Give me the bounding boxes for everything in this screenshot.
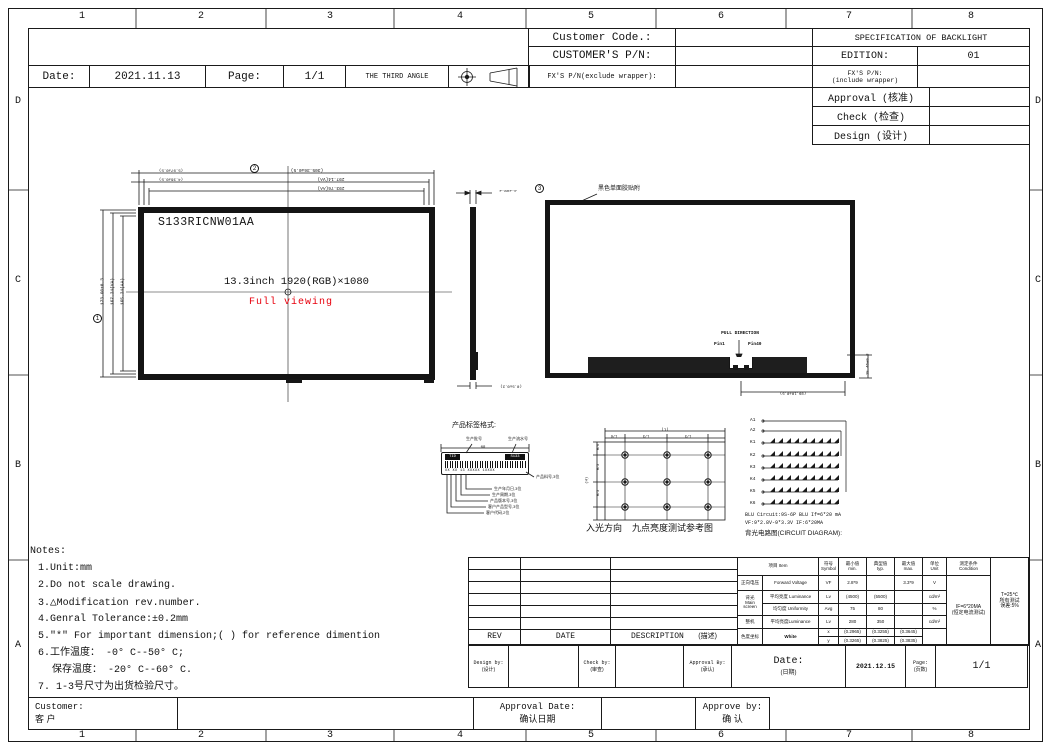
fv-item-en: Forward Voltage [763, 576, 819, 591]
uniformity-symbol: Avg [819, 604, 839, 616]
note-2: 2.Do not scale drawing. [38, 580, 176, 592]
terminal-a1: A1 [750, 418, 755, 423]
description-cn: (描述) [698, 633, 717, 640]
customer-footer-cn: 客 户 [35, 712, 56, 725]
backlight-item-cn: 背光Main screen [738, 591, 763, 616]
label-callout-week: 生产周期,3位 [492, 493, 515, 498]
signoff-page-cn: (页数) [914, 666, 927, 673]
fv-unit: V [923, 576, 947, 591]
panel-model: S133RICNW01AA [158, 216, 254, 229]
description-en: DESCRIPTION [631, 632, 684, 641]
chroma-x-symbol: x [819, 629, 839, 637]
rev-row-cell [469, 618, 521, 630]
fx-pn-include-value [917, 65, 1030, 88]
header-unit-en: Unit [923, 567, 946, 572]
full-viewing-label: Full viewing [249, 297, 333, 309]
pin40-label: Pin40 [748, 342, 762, 347]
circuit-diagram-title: 背光电路图(CIRCUIT DIAGRAM): [745, 530, 842, 537]
page-value-cell: 1/1 [283, 65, 346, 88]
ruler-col-top: 6 [711, 11, 731, 23]
ruler-col-top: 2 [191, 11, 211, 23]
luminance-min: (4500) [839, 591, 867, 604]
fx-pn-exclude-value [675, 65, 813, 88]
page-label-cell: Page: [205, 65, 284, 88]
customer-code-value [675, 28, 813, 47]
label-callout-serial: 生产流水号 [508, 437, 528, 442]
customer-footer-cell: Customer: 客 户 [28, 697, 178, 730]
header-condition: 测定条件Condition [947, 558, 991, 576]
third-angle-cell: THE THIRD ANGLE [345, 65, 449, 88]
terminal-k3: K3 [750, 465, 755, 470]
ruler-col-bottom: 4 [450, 730, 470, 742]
chroma-x-min: (0.2965) [839, 629, 867, 637]
front-view-panel [138, 207, 435, 380]
dim-width-aa: 293.76(AA) [296, 185, 366, 190]
fv-symbol: VF [819, 576, 839, 591]
barcode [445, 461, 527, 468]
approval-sign-area [929, 87, 1030, 107]
fx-pn-exclude-cell: FX'S P/N(exclude wrapper): [528, 65, 676, 88]
designby-sign-area [508, 644, 579, 688]
label-callout-date: 生产年月日,3位 [494, 487, 521, 492]
design-sign-area [929, 125, 1030, 145]
ruler-col-bottom: 7 [839, 730, 859, 742]
label-callout-customer-model: 客户产品型号,3位 [488, 505, 519, 510]
terminal-a2: A2 [750, 428, 755, 433]
tolerance-line3: 误差:5% [991, 604, 1028, 610]
ruler-row-right: B [1031, 460, 1045, 472]
machine-symbol: Lv [819, 616, 839, 629]
fx-pn-include-label: FX'S P/N: [847, 70, 882, 77]
rev-row-cell [469, 594, 521, 606]
dim-height-outline: 173.60±0.3 [100, 262, 105, 322]
rear-connector-pin [744, 365, 749, 370]
dim-width-va: 297.14(VA) [296, 176, 366, 181]
designby-cn: (设计) [482, 666, 495, 673]
approval-date-cell: Approval Date: 确认日期 [473, 697, 602, 730]
fx-pn-include-sub: (include wrapper) [832, 77, 898, 84]
chroma-x-max: (0.3645) [895, 629, 923, 637]
side-view-pcb [476, 352, 478, 370]
rev-row-cell [469, 558, 521, 570]
rear-connector-pin [733, 365, 738, 370]
dim-offset-2: (4.36±0.5) [149, 176, 193, 181]
dim-connector-height: 15.46±0.3 [867, 344, 872, 384]
note-8: 7. 1-3号尺寸为出货检验尺寸。 [38, 682, 184, 694]
approvalby-cn: (承认) [701, 666, 714, 673]
condition-line2: (恒定电流测试) [947, 611, 990, 617]
fx-pn-include-cell: FX'S P/N: (include wrapper) [812, 65, 918, 88]
panel-resolution: 13.3inch 1920(RGB)×1080 [224, 276, 369, 288]
dim-thickness: 3.2±0.2 [490, 187, 526, 192]
label-callout-customer-code: 客户代码,2位 [486, 511, 509, 516]
ruler-row-left: A [11, 640, 25, 652]
luminance-max [895, 591, 923, 604]
header-max-en: max. [895, 567, 922, 572]
header-typ: 典型值typ. [867, 558, 895, 576]
pin1-label: Pin1 [714, 342, 725, 347]
condition-cell: IF=6*20MA (恒定电流测试) [947, 576, 991, 646]
notes-title: Notes: [30, 546, 66, 558]
nine-point-dim-h3b: H/3 [597, 486, 601, 500]
ruler-col-bottom: 3 [320, 730, 340, 742]
terminal-k2: K2 [750, 453, 755, 458]
header-unit: 单位Unit [923, 558, 947, 576]
circuit-spec-line2: VF:9*2.8V-9*3.3V IF:6*20MA [745, 521, 823, 527]
front-view-tab [424, 379, 434, 383]
label-serial-row: XX XX 13 XXXXX 1XXXX [445, 469, 495, 473]
luminance-typ: (5500) [867, 591, 895, 604]
nine-point-dim-l: (L) [655, 426, 675, 431]
third-angle-symbol-cell [448, 65, 530, 88]
machine-typ: 350 [867, 616, 895, 629]
ruler-col-top: 7 [839, 11, 859, 23]
rev-row-cell [469, 570, 521, 582]
header-symbol: 符号Symbol [819, 558, 839, 576]
tolerance-cell: T=25℃ 所有测试 误差:5% [991, 558, 1029, 646]
nine-point-dim-h3a: H/3 [597, 460, 601, 474]
ruler-row-left: D [11, 96, 25, 108]
note-3: 3.△Modification rev.number. [38, 597, 201, 610]
approval-date-label: Approval Date: [500, 702, 576, 712]
front-view-tab [286, 379, 302, 383]
luminance-item: 平均亮度 Luminance [763, 591, 819, 604]
uniformity-max [895, 604, 923, 616]
signoff-date-cell: Date: (日期) [731, 644, 846, 688]
header-typ-en: typ. [867, 567, 894, 572]
note-5: 5."*" For important dimension;( ) for re… [38, 631, 380, 643]
ruler-row-left: C [11, 275, 25, 287]
label-callout-version: 产品版本号,3位 [490, 499, 517, 504]
header-condition-en: Condition [947, 567, 990, 572]
fv-max: 3.3*9 [895, 576, 923, 591]
ruler-col-top: 5 [581, 11, 601, 23]
chroma-unit [923, 629, 947, 646]
backlight-spec-sheet: 1 2 3 4 5 6 7 8 1 2 3 4 5 6 7 8 D C B A … [0, 0, 1051, 750]
label-width-dim: 89 [473, 443, 493, 448]
customer-pn-cell: CUSTOMER'S P/N: [528, 46, 676, 66]
note-1: 1.Unit:mm [38, 563, 92, 575]
check-sign-area [929, 106, 1030, 126]
nine-point-dim-l3a: L/3 [639, 433, 653, 437]
circuit-spec-line1: BLU Circuit:9S-6P BLU If=6*20 mA [745, 513, 841, 519]
edition-value: 01 [917, 46, 1030, 66]
dim-height-aa: 165.24(AA) [120, 262, 125, 322]
optical-spec-table: 项目 Item 符号Symbol 最小值min. 典型值typ. 最大值max.… [737, 557, 1029, 646]
checkby-cell: Check by: (审查) [578, 644, 616, 688]
spec-title: SPECIFICATION OF BACKLIGHT [812, 28, 1030, 47]
fv-item-cn: 正向电压 [738, 576, 763, 591]
chroma-item-en: White [763, 629, 819, 646]
checkby-cn: (审查) [590, 666, 603, 673]
date-value-cell: 2021.11.13 [89, 65, 206, 88]
edition-label: EDITION: [812, 46, 918, 66]
ruler-col-bottom: 8 [961, 730, 981, 742]
customer-pn-value [675, 46, 813, 66]
ruler-col-bottom: 1 [72, 730, 92, 742]
designby-cell: Design by: (设计) [468, 644, 509, 688]
header-item-en: Item [779, 563, 788, 568]
ruler-row-left: B [11, 460, 25, 472]
approval-date-value [601, 697, 696, 730]
ruler-row-right: A [1031, 640, 1045, 652]
ruler-col-bottom: 2 [191, 730, 211, 742]
nine-point-dim-h: (H) [586, 470, 591, 490]
design-cell: Design (设计) [812, 125, 930, 145]
label-tid: TID [445, 454, 460, 460]
rear-view-board [588, 357, 807, 373]
ruler-col-bottom: 6 [711, 730, 731, 742]
note-6: 6.工作温度： -0° C--50° C; [38, 648, 184, 660]
header-min: 最小值min. [839, 558, 867, 576]
uniformity-unit: % [923, 604, 947, 616]
date-label-cell: Date: [28, 65, 90, 88]
nine-point-dim-h6: H/6 [597, 440, 601, 454]
luminance-unit: cd/m² [923, 591, 947, 604]
terminal-k6: K6 [750, 501, 755, 506]
luminance-symbol: Lv [819, 591, 839, 604]
dim-offset-1: (5.97±0.5) [149, 167, 193, 172]
check-cell: Check (检查) [812, 106, 930, 126]
uniformity-typ: 80 [867, 604, 895, 616]
revision-table: REV DATE DESCRIPTION (描述) [468, 557, 738, 646]
header-item-cn: 项目 [768, 563, 777, 568]
balloon-2: 2 [250, 164, 259, 173]
machine-item-cn: 整机 [738, 616, 763, 629]
dim-height-va: 167.24(VA) [110, 262, 115, 322]
nine-point-caption-direction: 入光方向 [586, 523, 622, 533]
uniformity-item: 均匀度 Uniformity [763, 604, 819, 616]
revision-triangle-icon: △ [50, 597, 57, 609]
signoff-page-value: 1/1 [935, 644, 1028, 688]
nine-point-dim-l3b: L/3 [681, 433, 695, 437]
fv-min: 2.8*9 [839, 576, 867, 591]
customer-code-cell: Customer Code.: [528, 28, 676, 47]
dim-connector-width: (89.10±0.5) [763, 390, 823, 395]
dim-side-bottom: (0.5±0.2) [491, 383, 531, 388]
approval-cell: Approval (核准) [812, 87, 930, 107]
label-spec-title: 产品标签格式: [452, 422, 496, 430]
approve-by-label: Approve by: [703, 702, 762, 712]
balloon-3: 3 [535, 184, 544, 193]
backlight-en: Main screen [738, 601, 762, 611]
machine-max [895, 616, 923, 629]
label-callout-part: 产品料号,3位 [536, 475, 559, 480]
customer-footer-value [177, 697, 474, 730]
ruler-col-top: 3 [320, 11, 340, 23]
header-item: 项目 Item [738, 558, 819, 576]
ruler-row-right: C [1031, 275, 1045, 287]
label-callout-batch: 生产批号 [466, 437, 482, 442]
terminal-k5: K5 [750, 489, 755, 494]
machine-min: 280 [839, 616, 867, 629]
nine-point-dim-l6: L/6 [607, 433, 621, 437]
balloon-1: 1 [93, 314, 102, 323]
note-7: 保存温度： -20° C--60° C. [52, 665, 192, 677]
ruler-row-right: D [1031, 96, 1045, 108]
fv-typ [867, 576, 895, 591]
signoff-date-value: 2021.12.15 [845, 644, 906, 688]
ruler-col-top: 4 [450, 11, 470, 23]
customer-footer-label: Customer: [35, 702, 84, 712]
rev-row-cell [469, 582, 521, 594]
pull-direction-label: PULL DIRECTION [710, 331, 770, 336]
approval-date-cn: 确认日期 [519, 712, 555, 725]
nine-point-caption: 九点亮度测试参考图 [632, 523, 713, 533]
approve-by-cell: Approve by: 确 认 [695, 697, 770, 730]
checkby-sign-area [615, 644, 684, 688]
rear-view-panel [545, 200, 855, 378]
signoff-date-cn: (日期) [781, 667, 797, 676]
chroma-x-typ: (0.3255) [867, 629, 895, 637]
tape-callout: 黑色单面胶贴附 [598, 186, 640, 193]
signoff-page-cell: Page: (页数) [905, 644, 936, 688]
chroma-item-cn: 色度坐标 [738, 629, 763, 646]
uniformity-min: 75 [839, 604, 867, 616]
signoff-date-label: Date: [773, 656, 803, 667]
note-3-text: Modification rev.number. [57, 598, 201, 609]
header-min-en: min. [839, 567, 866, 572]
terminal-k1: K1 [750, 440, 755, 445]
machine-unit: cd/m² [923, 616, 947, 629]
approvalby-cell: Approval By: (承认) [683, 644, 732, 688]
ruler-col-top: 8 [961, 11, 981, 23]
ruler-col-bottom: 5 [581, 730, 601, 742]
note-4: 4.Genral Tolerance:±0.2mm [38, 614, 188, 626]
machine-item-en: 平均亮度Luminance [763, 616, 819, 629]
ruler-col-top: 1 [72, 11, 92, 23]
terminal-k4: K4 [750, 477, 755, 482]
header-max: 最大值max. [895, 558, 923, 576]
rev-row-cell [469, 606, 521, 618]
dim-width-outline: (305.36±0.5) [262, 167, 352, 172]
label-model-code: S133 [505, 454, 525, 460]
approve-by-cn: 确 认 [722, 712, 743, 725]
note-3-prefix: 3. [38, 598, 50, 609]
product-label: TID S133 XX XX 13 XXXXX 1XXXX [441, 452, 529, 475]
header-symbol-en: Symbol [819, 567, 838, 572]
